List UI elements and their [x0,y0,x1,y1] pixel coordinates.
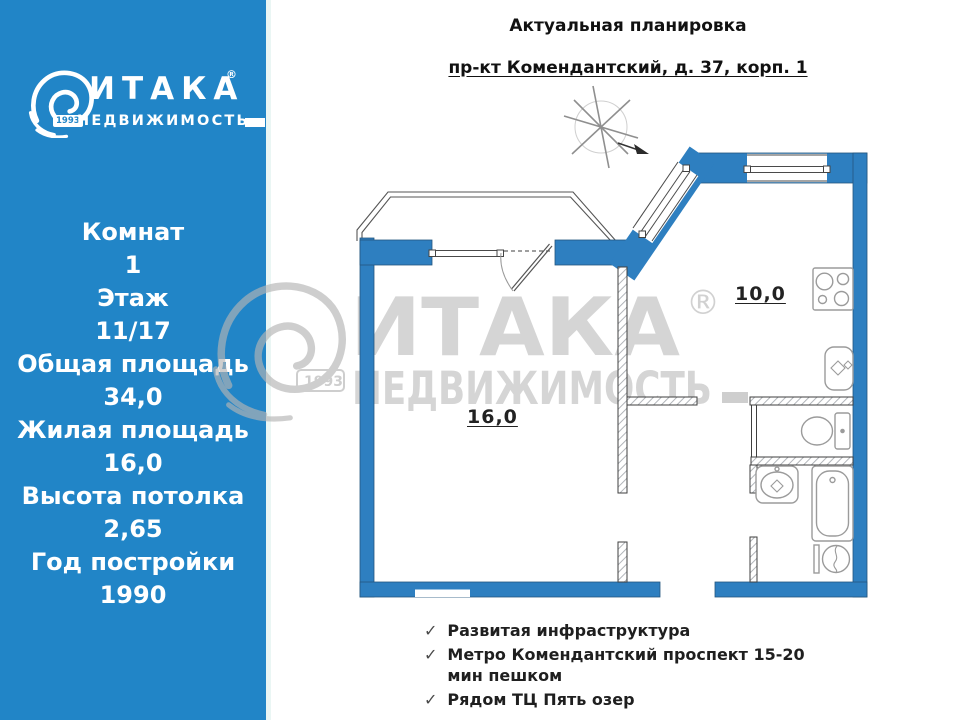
feature-item: ✓ Рядом ТЦ Пять озер [424,689,829,710]
feature-list: ✓ Развитая инфраструктура ✓ Метро Коменд… [424,620,829,713]
fixtures [756,268,853,573]
feature-text: Развитая инфраструктура [447,620,690,641]
toilet-icon [802,413,851,449]
balcony-door [501,244,552,291]
outer-walls [360,153,867,597]
kitchen-sink-icon [825,347,853,390]
wc-door-jamb [752,405,757,457]
feature-text: Рядом ТЦ Пять озер [447,689,634,710]
stove-icon [813,268,853,310]
room-area-label-kitchen: 10,0 [735,283,786,305]
check-icon: ✓ [424,689,437,710]
compass-icon [564,86,649,168]
bathroom-sink-icon [756,466,798,503]
check-icon: ✓ [424,644,437,665]
living-room-window [429,250,504,257]
feature-item: ✓ Метро Комендантский проспект 15-20 мин… [424,644,829,686]
property-address: пр-кт Комендантский, д. 37, корп. 1 [320,58,936,78]
balcony-outline [357,192,616,241]
check-icon: ✓ [424,620,437,641]
bathtub-icon [812,466,853,541]
washing-machine-icon [814,545,850,573]
page-title: Актуальная планировка [320,16,936,36]
floor-plan [0,0,960,720]
feature-text: Метро Комендантский проспект 15-20 мин п… [447,644,829,686]
header: Актуальная планировка пр-кт Комендантски… [320,16,936,78]
room-area-label-living: 16,0 [467,406,518,428]
bottom-wall-notch [415,590,470,598]
flyer-page: ИТАКА ® 1993 НЕДВИЖИМОСТЬ Комнат 1 Этаж … [0,0,960,720]
feature-item: ✓ Развитая инфраструктура [424,620,829,641]
